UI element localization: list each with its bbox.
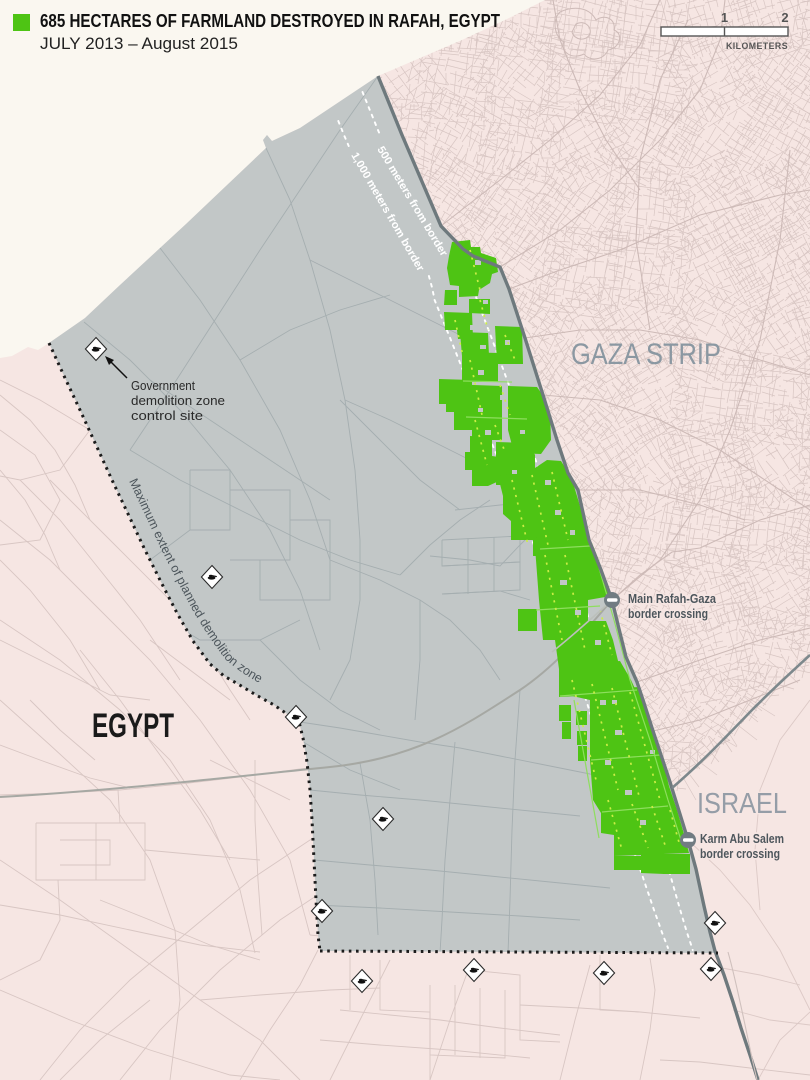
svg-text:border crossing: border crossing xyxy=(700,846,780,861)
svg-text:GAZA STRIP: GAZA STRIP xyxy=(571,338,721,371)
svg-text:control site: control site xyxy=(131,408,203,423)
svg-text:685 HECTARES OF FARMLAND DESTR: 685 HECTARES OF FARMLAND DESTROYED IN RA… xyxy=(40,11,500,31)
svg-text:Karm Abu Salem: Karm Abu Salem xyxy=(700,831,784,846)
svg-text:demolition zone: demolition zone xyxy=(131,393,225,408)
svg-text:EGYPT: EGYPT xyxy=(92,707,174,745)
svg-text:Government: Government xyxy=(131,378,195,393)
svg-text:ISRAEL: ISRAEL xyxy=(697,788,787,820)
svg-text:JULY 2013 – August 2015: JULY 2013 – August 2015 xyxy=(40,34,238,53)
svg-text:Main Rafah-Gaza: Main Rafah-Gaza xyxy=(628,591,717,606)
svg-text:2: 2 xyxy=(781,10,788,25)
svg-text:1: 1 xyxy=(721,10,728,25)
svg-text:border crossing: border crossing xyxy=(628,606,708,621)
svg-text:KILOMETERS: KILOMETERS xyxy=(726,41,788,52)
